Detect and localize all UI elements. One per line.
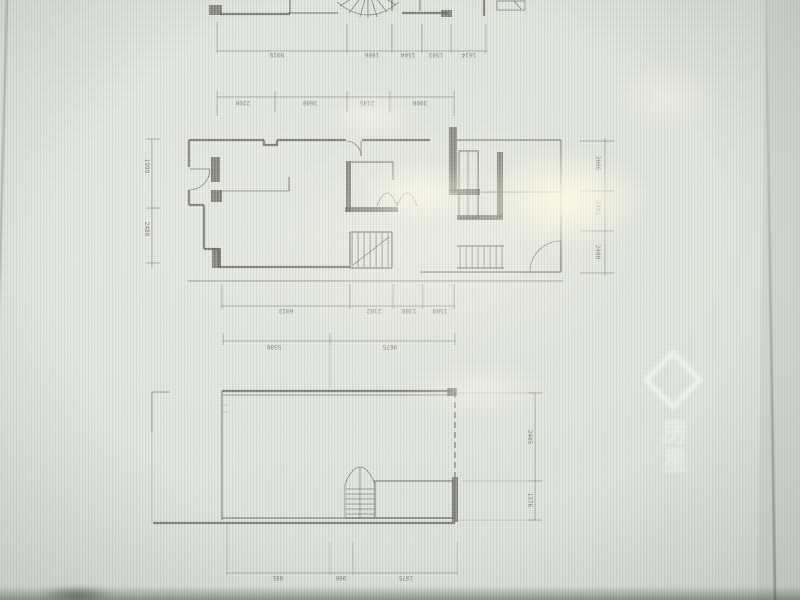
- vignette: [0, 0, 800, 600]
- floorplan-photo: 9019 1606 1504 1503 1614 2200 3600 2145 …: [0, 0, 800, 600]
